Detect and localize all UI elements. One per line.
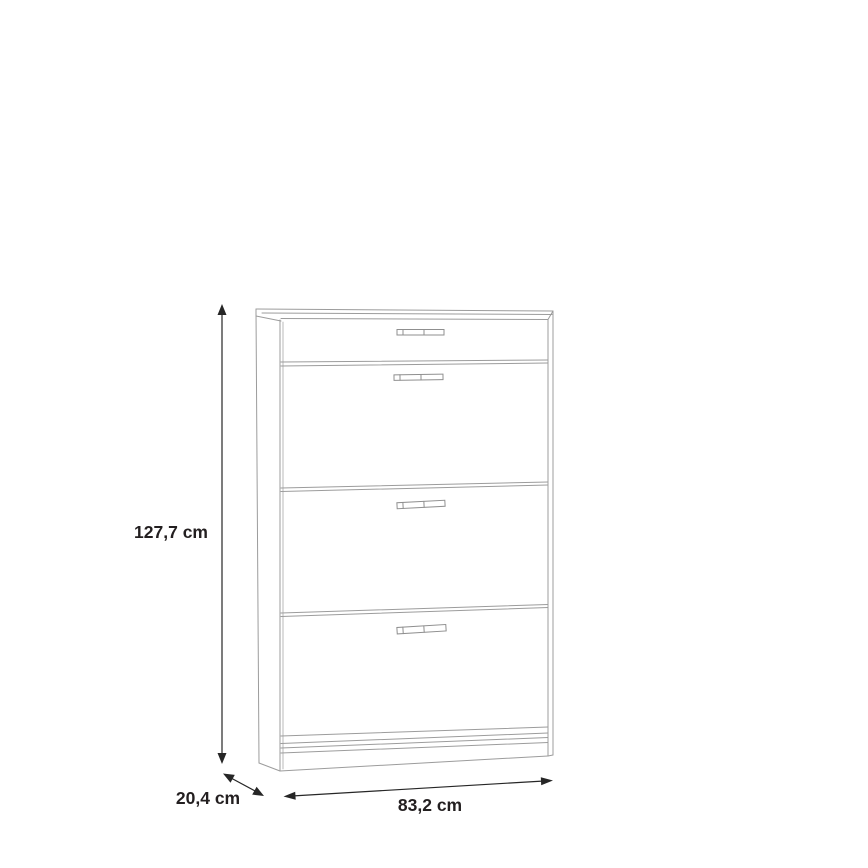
height-arrow-top	[218, 304, 227, 315]
cabinet-right-side-edge	[548, 311, 553, 756]
drawer-handle	[397, 330, 444, 336]
cabinet-plinth	[280, 727, 548, 771]
cabinet	[256, 309, 553, 771]
product-dimension-page: 127,7 cm 20,4 cm 83,2 cm	[0, 0, 868, 868]
cabinet-left-side-panel	[256, 311, 283, 771]
flap1-gap-line	[281, 482, 548, 492]
dimension-annotations: 127,7 cm 20,4 cm 83,2 cm	[134, 304, 553, 815]
flap2-handle	[397, 500, 445, 509]
width-dimension-label: 83,2 cm	[398, 795, 462, 815]
flap1-handle	[394, 374, 443, 380]
width-arrow-left	[284, 792, 296, 800]
cabinet-top-panel	[256, 309, 553, 321]
flap2-gap-line	[281, 605, 548, 617]
depth-dimension-label: 20,4 cm	[176, 788, 240, 808]
height-arrow-bottom	[218, 753, 227, 764]
product-dimension-drawing: 127,7 cm 20,4 cm 83,2 cm	[0, 0, 868, 868]
height-dimension-label: 127,7 cm	[134, 522, 208, 542]
depth-arrow-lower	[252, 787, 264, 796]
flap3-handle	[397, 624, 446, 633]
top-drawer-gap-line	[281, 360, 548, 366]
width-arrow-right	[541, 777, 553, 785]
height-dimension-line	[218, 304, 227, 764]
depth-arrow-upper	[223, 774, 235, 783]
